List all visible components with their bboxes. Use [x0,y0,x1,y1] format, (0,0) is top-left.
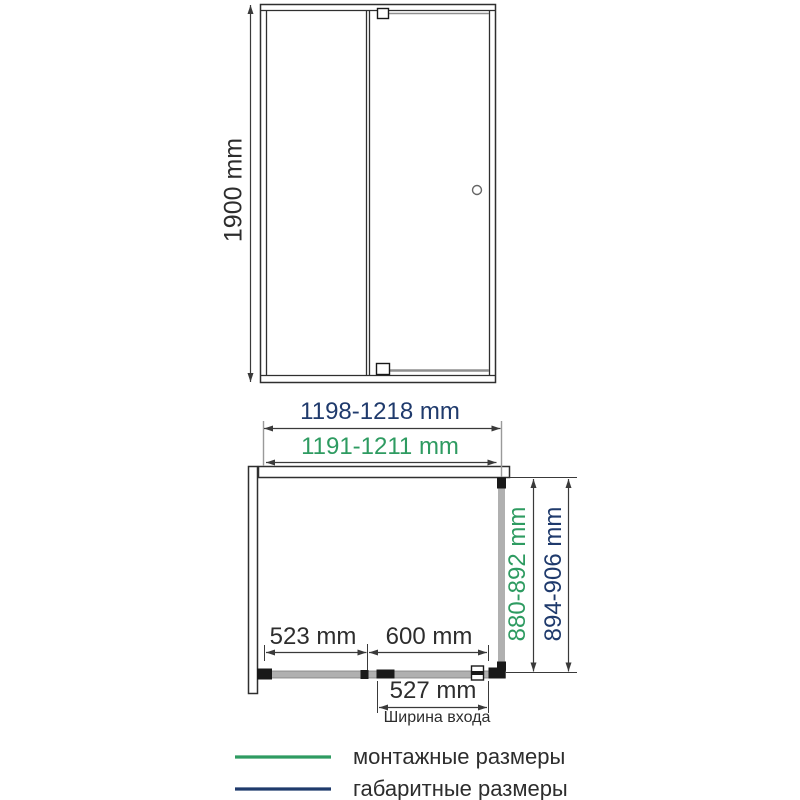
mounting-width-label: 1191-1211 mm [301,435,459,459]
fixed-panel-width-label: 523 mm [270,625,357,649]
door-handle-icon [473,186,482,195]
entrance-width-caption: Ширина входа [384,710,491,726]
height-dimension-label: 1900 mm [222,138,247,242]
legend-mounting-label: монтажные размеры [353,746,565,768]
wall-section [249,467,258,694]
dimension-drawing-page: 1900 mm 1198-1218 mm 1191-1211 mm 880-89… [0,0,800,800]
entrance-width-label: 527 mm [390,679,477,703]
mounting-depth-label: 880-892 mm [506,507,530,642]
door-width-label: 600 mm [386,625,473,649]
pivot-block [361,670,369,679]
overall-width-label: 1198-1218 mm [300,400,460,424]
overall-depth-label: 894-906 mm [542,507,566,642]
left-wall-profile [257,669,272,680]
front-view-drawing [261,5,496,383]
bottom-hinge-bracket [377,364,390,375]
legend-overall-label: габаритные размеры [353,778,568,800]
top-hinge-bracket [378,9,389,19]
back-panel [259,467,510,478]
corner-profile [489,668,506,679]
